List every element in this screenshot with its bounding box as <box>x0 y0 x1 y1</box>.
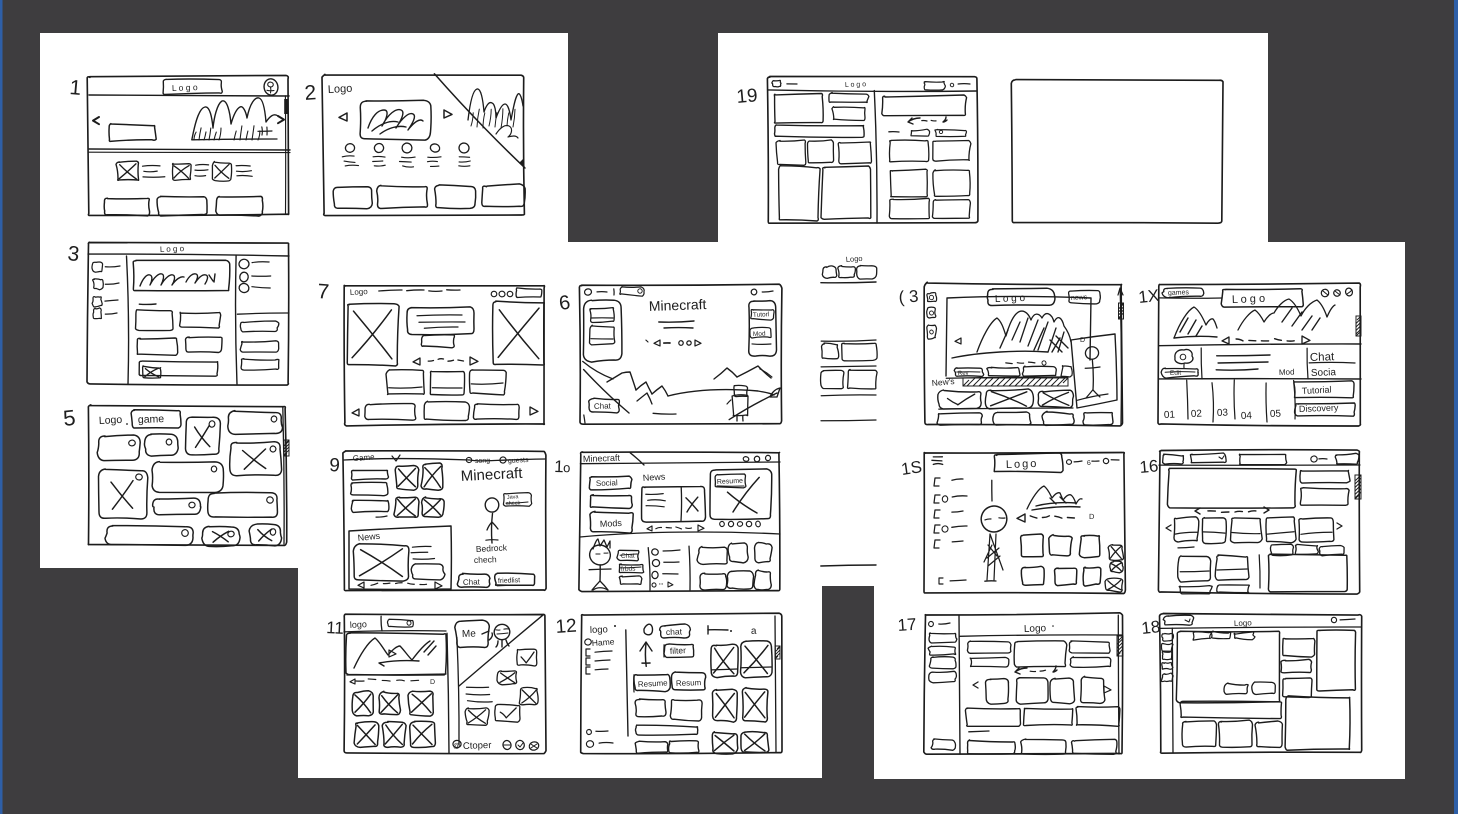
svg-text:chech: chech <box>474 554 497 565</box>
svg-text:Logo: Logo <box>1006 458 1039 471</box>
svg-text:Minecraft: Minecraft <box>649 296 707 314</box>
svg-text:Resume: Resume <box>717 478 744 486</box>
svg-text:Mod: Mod <box>753 331 766 338</box>
svg-text:1S: 1S <box>900 457 923 479</box>
svg-text:Discovery: Discovery <box>1299 403 1339 414</box>
svg-text:filter: filter <box>670 645 687 656</box>
svg-text:Chat: Chat <box>463 577 481 587</box>
svg-text:5: 5 <box>62 405 77 431</box>
svg-text:games: games <box>1168 289 1190 297</box>
svg-text:Hame: Hame <box>591 636 615 648</box>
svg-text:Bedrock: Bedrock <box>476 542 508 554</box>
svg-text:17: 17 <box>897 615 917 635</box>
svg-text:Logo: Logo <box>846 254 863 264</box>
svg-text:9: 9 <box>329 455 341 477</box>
svg-text:Chat: Chat <box>621 553 635 560</box>
svg-text:16: 16 <box>1139 456 1160 477</box>
svg-text:( 3: ( 3 <box>898 287 919 307</box>
svg-text:song: song <box>475 457 491 465</box>
svg-text:6: 6 <box>1087 460 1091 467</box>
svg-text:news: news <box>1071 294 1088 302</box>
svg-text:a: a <box>751 626 757 637</box>
svg-text:Mod: Mod <box>1279 367 1295 377</box>
svg-text:Logo: Logo <box>1234 618 1253 628</box>
svg-text:L o g o: L o g o <box>172 82 198 93</box>
svg-text:Resum: Resum <box>676 678 702 688</box>
svg-text:frbds: frbds <box>621 565 636 573</box>
svg-text:19: 19 <box>736 85 759 108</box>
svg-text:o: o <box>563 460 571 475</box>
svg-text:Social: Social <box>596 478 618 488</box>
svg-text:05: 05 <box>1270 409 1282 420</box>
svg-text:Rev: Rev <box>958 370 969 377</box>
svg-text:18: 18 <box>1140 617 1161 638</box>
svg-text:L o g o: L o g o <box>1232 293 1266 306</box>
svg-text:L o g o: L o g o <box>160 244 185 254</box>
svg-text:News: News <box>642 471 666 483</box>
svg-text:2: 2 <box>304 81 317 105</box>
svg-text:3: 3 <box>66 242 80 266</box>
svg-text:Minecraft: Minecraft <box>583 453 621 464</box>
svg-text:1: 1 <box>69 76 83 100</box>
svg-text:guests: guests <box>508 457 529 465</box>
svg-text:Tutorl: Tutorl <box>753 311 770 319</box>
svg-text:Socia: Socia <box>1311 367 1337 379</box>
svg-text:03: 03 <box>1217 408 1229 419</box>
svg-text:12: 12 <box>555 616 578 638</box>
svg-text:1X: 1X <box>1137 286 1160 307</box>
svg-text:check: check <box>506 500 521 507</box>
svg-text:New's: New's <box>931 376 955 388</box>
svg-text:logo: logo <box>590 624 608 636</box>
svg-text:chat: chat <box>666 626 683 637</box>
svg-text:Chat: Chat <box>594 401 612 411</box>
svg-text:@: @ <box>453 742 460 750</box>
svg-text:Mods: Mods <box>600 518 623 529</box>
svg-text:''': ''' <box>659 583 663 590</box>
svg-text:D: D <box>1089 512 1095 521</box>
svg-text:L o g o: L o g o <box>995 293 1026 305</box>
svg-text:Minecraft: Minecraft <box>460 465 523 485</box>
svg-text:Tutorial: Tutorial <box>1302 384 1332 396</box>
svg-text:Logo: Logo <box>1024 623 1047 635</box>
svg-text:Resume: Resume <box>638 678 669 689</box>
svg-text:game: game <box>138 413 165 426</box>
svg-text:Game: Game <box>353 452 376 463</box>
svg-text:friedlist: friedlist <box>498 576 520 585</box>
svg-text:L o g o: L o g o <box>845 81 866 89</box>
svg-text:Logo: Logo <box>328 83 353 96</box>
svg-text:04: 04 <box>1241 410 1253 422</box>
svg-text:Me: Me <box>462 629 477 640</box>
svg-text:D: D <box>430 679 435 686</box>
svg-text:7: 7 <box>317 280 330 304</box>
svg-text:logo: logo <box>350 619 368 630</box>
svg-text:01: 01 <box>1164 410 1176 421</box>
svg-text:Logo: Logo <box>99 414 123 427</box>
svg-text:Ctoper: Ctoper <box>463 740 492 752</box>
svg-text:Edit: Edit <box>1170 370 1182 377</box>
svg-text:02: 02 <box>1191 408 1203 420</box>
svg-text:11: 11 <box>326 618 345 638</box>
svg-text:Logo: Logo <box>350 287 369 297</box>
